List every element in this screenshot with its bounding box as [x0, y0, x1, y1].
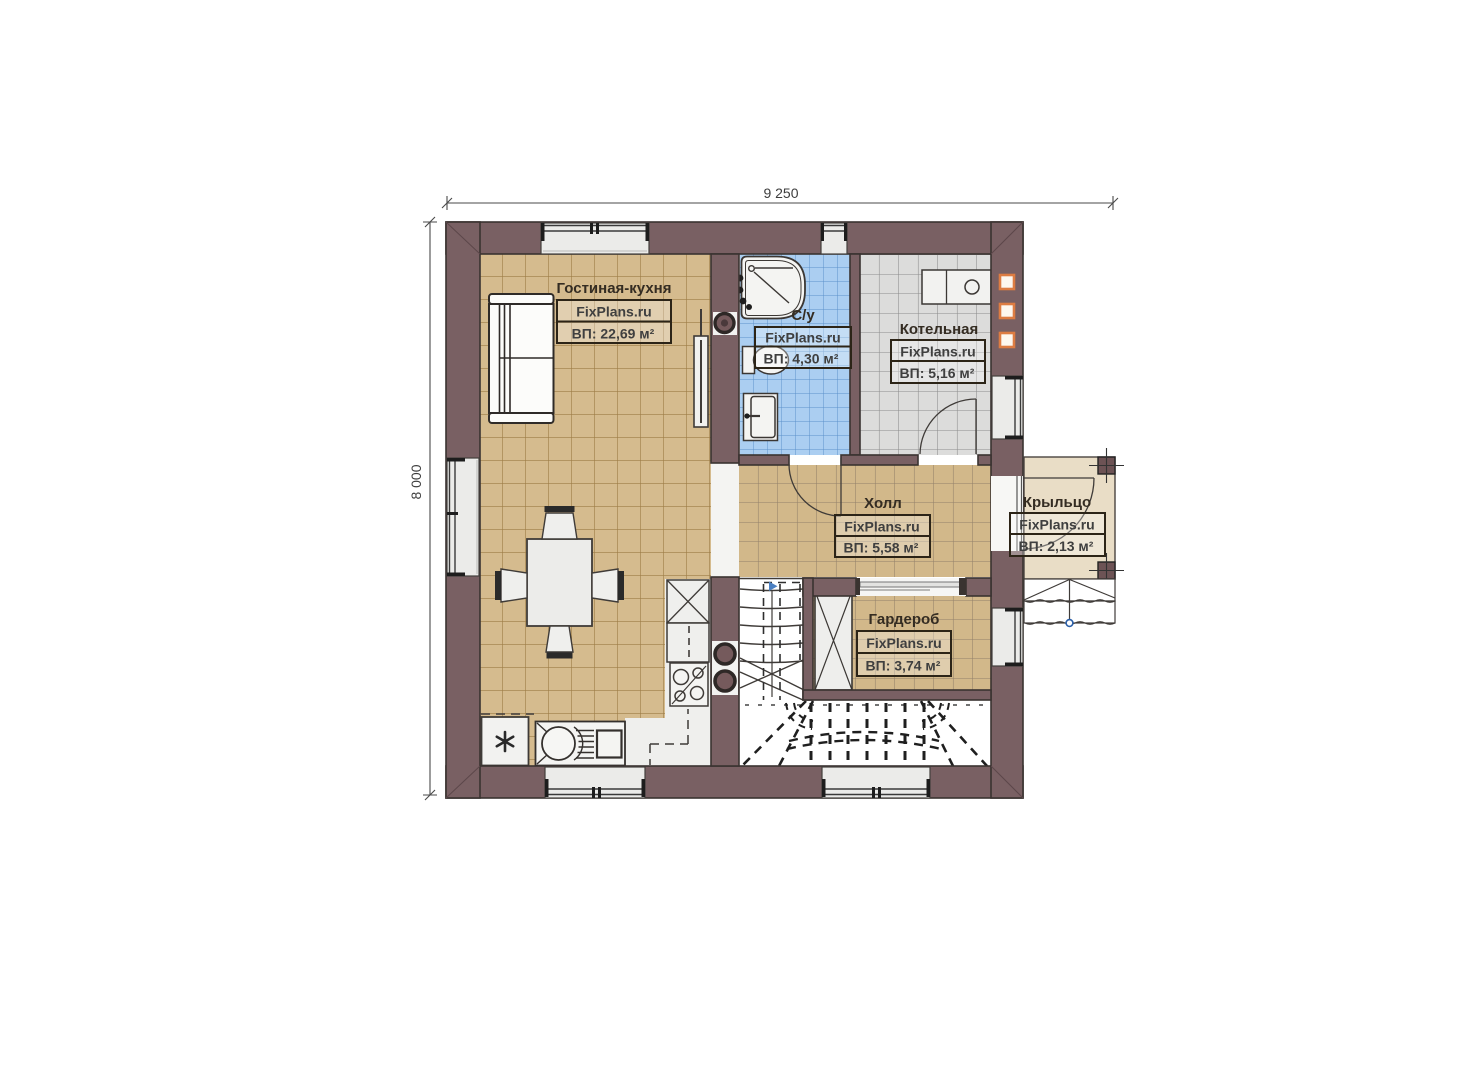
svg-text:ВП: 3,74 м²: ВП: 3,74 м² — [866, 658, 941, 674]
svg-text:Гардероб: Гардероб — [869, 611, 940, 628]
svg-text:FixPlans.ru: FixPlans.ru — [866, 635, 941, 651]
svg-text:Котельная: Котельная — [900, 321, 979, 338]
svg-text:FixPlans.ru: FixPlans.ru — [576, 304, 651, 320]
svg-text:Крыльцо: Крыльцо — [1023, 494, 1091, 511]
svg-text:FixPlans.ru: FixPlans.ru — [844, 519, 919, 535]
svg-text:FixPlans.ru: FixPlans.ru — [1019, 517, 1094, 533]
svg-text:ВП: 4,30 м²: ВП: 4,30 м² — [764, 351, 839, 367]
svg-text:8 000: 8 000 — [408, 464, 424, 499]
svg-text:Гостиная-кухня: Гостиная-кухня — [557, 280, 672, 297]
svg-text:ВП: 2,13 м²: ВП: 2,13 м² — [1019, 538, 1094, 554]
svg-text:9 250: 9 250 — [763, 185, 798, 201]
svg-text:ВП: 5,16 м²: ВП: 5,16 м² — [900, 365, 975, 381]
svg-text:ВП: 5,58 м²: ВП: 5,58 м² — [844, 540, 919, 556]
svg-text:ВП: 22,69 м²: ВП: 22,69 м² — [572, 326, 655, 342]
svg-text:FixPlans.ru: FixPlans.ru — [900, 344, 975, 360]
svg-text:FixPlans.ru: FixPlans.ru — [765, 330, 840, 346]
svg-text:Холл: Холл — [864, 495, 902, 512]
svg-text:С/у: С/у — [791, 307, 815, 324]
